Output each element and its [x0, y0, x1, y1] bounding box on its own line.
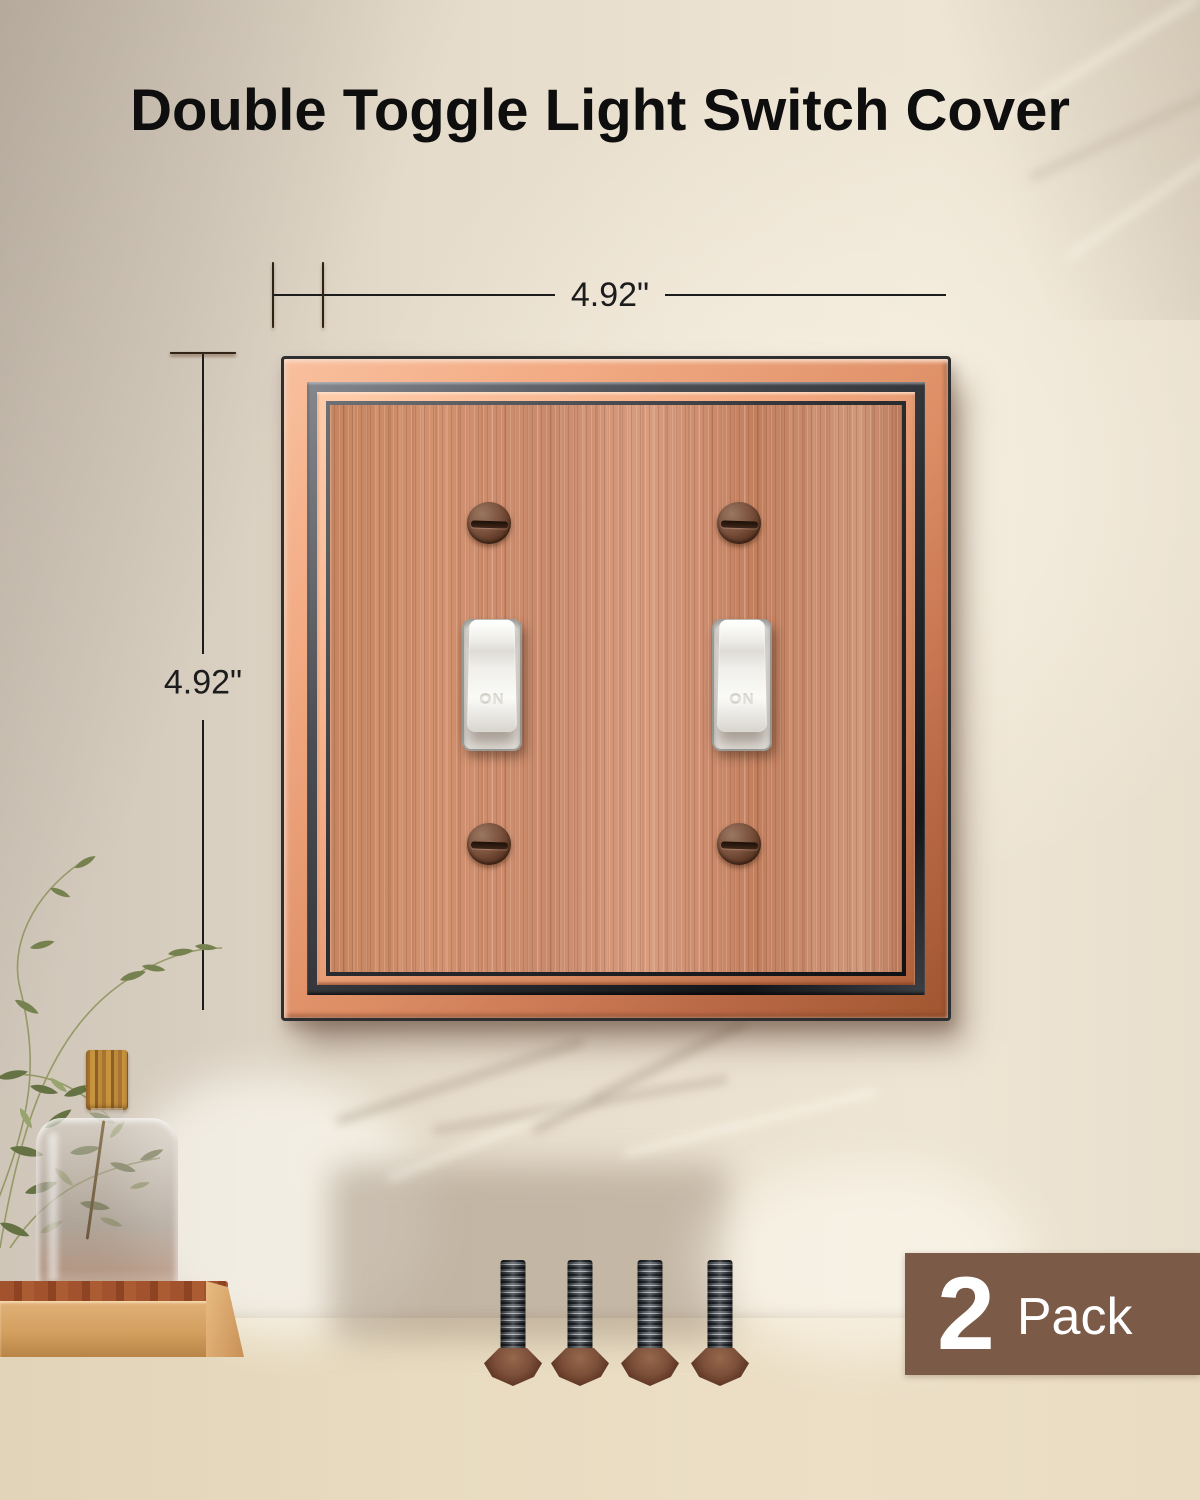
switch-plate: ON ON: [281, 356, 951, 1021]
screw-slot: [470, 841, 507, 849]
plate-frame-outer-copper: ON ON: [284, 359, 948, 1018]
plate-frame-inner-copper: ON ON: [317, 392, 915, 985]
plate-screw: [717, 823, 761, 865]
pack-count: 2: [937, 1262, 995, 1366]
page-title: Double Toggle Light Switch Cover: [0, 82, 1200, 140]
screw-shaft: [638, 1260, 663, 1354]
screw-head: [691, 1348, 749, 1386]
dimension-line: [665, 294, 946, 296]
screw-slot: [720, 841, 757, 849]
plate-screw: [717, 502, 761, 544]
screw-head: [551, 1348, 609, 1386]
plate-face: ON ON: [330, 405, 902, 972]
plate-screw: [467, 823, 511, 865]
mounting-screw: [620, 1260, 680, 1386]
toggle-switch-right: ON: [712, 619, 772, 751]
dimension-line: [274, 294, 555, 296]
screw-shaft: [708, 1260, 733, 1354]
pack-unit: Pack: [1017, 1281, 1133, 1347]
toggle-on-label: ON: [468, 693, 517, 710]
toggle-on-label: ON: [718, 693, 767, 710]
mounting-screw: [550, 1260, 610, 1386]
toggle-lever: ON: [467, 620, 517, 732]
pack-count-badge: 2 Pack: [905, 1253, 1200, 1375]
width-dimension-label: 4.92": [555, 276, 665, 315]
bottle-wood-cap: [86, 1050, 128, 1110]
mounting-screw: [483, 1260, 543, 1386]
screw-head: [621, 1348, 679, 1386]
plate-frame-dark-band: ON ON: [307, 382, 925, 995]
mounting-screw: [690, 1260, 750, 1386]
tray-end: [206, 1281, 244, 1357]
width-dimension-line: 4.92": [272, 262, 948, 328]
toggle-lever: ON: [717, 620, 767, 732]
screw-head: [484, 1348, 542, 1386]
toggle-switch-left: ON: [462, 619, 522, 751]
dimension-end-cap: [322, 262, 324, 328]
tray-front: [0, 1301, 232, 1357]
screw-shaft: [568, 1260, 593, 1354]
plate-frame-inner-edge: ON ON: [326, 401, 906, 976]
screw-slot: [720, 520, 757, 528]
wooden-tray: [0, 1281, 244, 1357]
plate-screw: [467, 502, 511, 544]
screw-shaft: [501, 1260, 526, 1354]
dimension-end-cap: [170, 352, 236, 354]
dimension-line: [202, 354, 204, 654]
product-image: Double Toggle Light Switch Cover 4.92" 4…: [0, 0, 1200, 1500]
glass-bottle: [36, 1050, 178, 1312]
screw-slot: [470, 520, 507, 528]
